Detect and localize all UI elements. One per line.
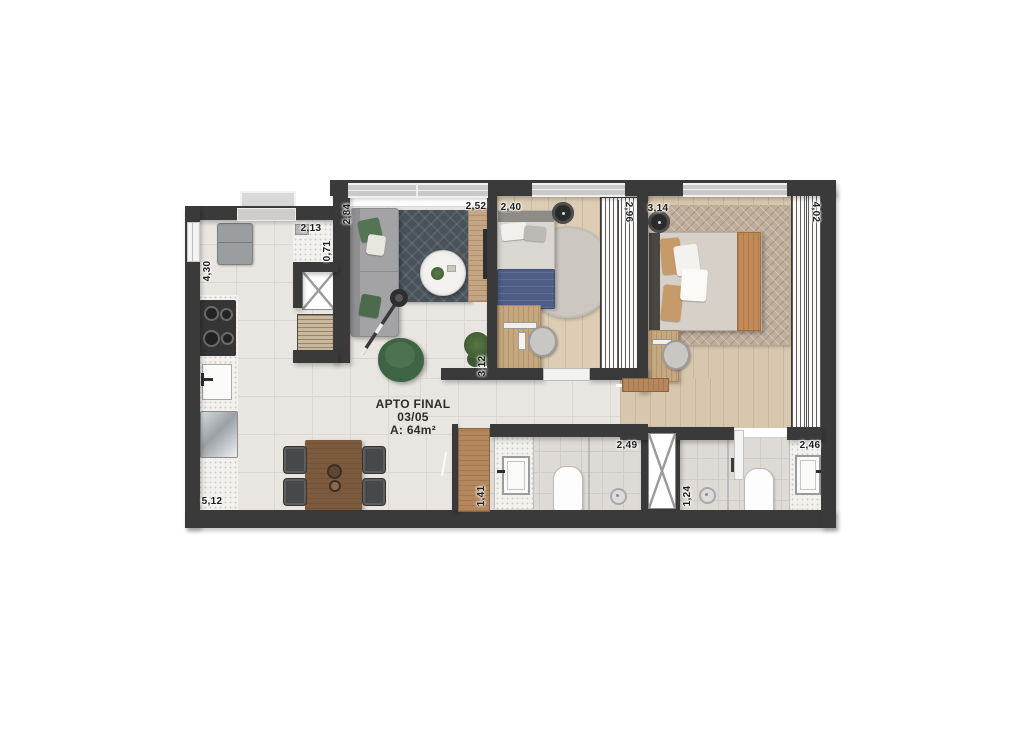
window-frame-line xyxy=(348,190,488,191)
shaft-x-icon xyxy=(649,434,675,508)
table-plant xyxy=(431,267,444,280)
dim-label-bedroom2-width: 3,14 xyxy=(643,203,673,215)
blue-blanket xyxy=(497,269,555,309)
bathroom2-door xyxy=(734,430,744,480)
louvered-cabinet xyxy=(297,314,336,353)
bathroom1-toilet xyxy=(553,466,583,511)
fridge xyxy=(217,223,253,265)
coffee-table xyxy=(420,250,466,296)
window-frame-line xyxy=(192,223,193,261)
apartment-title-line3: A: 64m² xyxy=(348,424,478,437)
bathroom1-shower-glass xyxy=(588,432,590,510)
wall-living-bedroom1 xyxy=(487,192,497,372)
burner xyxy=(203,330,220,347)
bedroom1-bed xyxy=(497,210,555,308)
dim-label-bathroom2-vanity: 2,46 xyxy=(795,440,825,452)
wardrobe-rail xyxy=(618,200,619,369)
dim-label-living-width: 2,52 xyxy=(461,201,491,213)
dim-label-hall-length: 3,12 xyxy=(477,351,489,381)
wall-counter-stub-left xyxy=(293,272,302,308)
burner xyxy=(220,308,233,321)
floor-plan: 2,13 0,71 4,30 5,12 2,84 2,52 2,40 2,96 … xyxy=(0,0,1024,739)
armchair-seat xyxy=(385,342,415,368)
desk-chair xyxy=(662,340,690,370)
table-decor xyxy=(327,464,342,479)
bathroom2-shower-glass xyxy=(727,437,729,512)
headboard xyxy=(649,233,660,330)
dim-label-kitchen-depth: 4,30 xyxy=(202,256,214,286)
bathroom2-sink xyxy=(795,455,821,495)
dim-label-kitchen-length: 5,12 xyxy=(197,496,227,508)
wardrobe-rail xyxy=(806,196,807,429)
dim-label-bathroom1-width: 1,41 xyxy=(476,481,488,511)
wall-bedroom1-bedroom2 xyxy=(637,192,648,392)
desk-chair xyxy=(528,326,557,357)
wall-counter-stub-bottom xyxy=(293,350,338,363)
dining-chair xyxy=(362,478,386,506)
bed-pillow xyxy=(523,225,546,242)
bedroom2-door xyxy=(622,378,669,392)
bedroom1-door xyxy=(543,368,590,381)
table-item xyxy=(447,265,456,272)
dining-table xyxy=(305,440,362,514)
shaft-x-icon xyxy=(303,272,334,309)
dim-label-bedroom1-closet: 2,96 xyxy=(622,197,634,227)
bathroom-duct-shaft xyxy=(648,433,676,509)
living-balcony-door xyxy=(348,183,488,198)
bathroom2-toilet xyxy=(744,468,774,514)
faucet-icon xyxy=(497,470,505,473)
dim-label-bathroom2-width: 1,24 xyxy=(682,481,694,511)
washing-machine xyxy=(200,411,238,458)
kitchen-duct-shaft xyxy=(302,271,335,310)
kitchen-sink xyxy=(202,364,232,400)
wall-bottom xyxy=(185,510,836,528)
burner xyxy=(204,306,219,321)
apartment-title: APTO FINAL 03/05 A: 64m² xyxy=(348,398,478,437)
monitor xyxy=(503,322,537,329)
bathroom1-sink xyxy=(502,456,530,495)
dim-label-counter-depth: 0,71 xyxy=(322,236,334,266)
wall-bedroom2-bottom-right xyxy=(787,427,822,440)
bedroom2-window xyxy=(683,183,787,197)
bedroom1-window xyxy=(532,183,625,197)
burner xyxy=(221,332,234,345)
bedroom2-wardrobe xyxy=(791,193,824,432)
bathroom2-shower-drain xyxy=(699,487,716,504)
faucet-icon xyxy=(201,373,204,386)
bedroom2-bed xyxy=(648,232,762,331)
armchair xyxy=(378,338,424,382)
dining-chair xyxy=(283,446,307,474)
wall-bedroom1-bottom xyxy=(441,368,543,380)
stove xyxy=(199,300,236,356)
bed-pillow xyxy=(680,268,708,302)
sofa-seam xyxy=(360,271,398,272)
dim-label-bedroom2-closet: 4,02 xyxy=(809,197,821,227)
dim-label-living-sofa-wall: 2,84 xyxy=(342,199,354,229)
bed-runner xyxy=(737,232,761,331)
table-decor xyxy=(329,480,341,492)
bathroom1-shower-drain xyxy=(610,488,627,505)
dining-chair xyxy=(362,446,386,474)
window-frame-line xyxy=(532,189,625,190)
bedroom1-lamp xyxy=(552,202,574,224)
dim-label-bedroom1-width: 2,40 xyxy=(496,202,526,214)
dining-chair xyxy=(283,478,307,506)
wall-bedroom2-bottom-left xyxy=(620,427,734,440)
window-frame-line xyxy=(416,185,418,196)
wall-right xyxy=(821,188,836,528)
dim-label-bathroom1-length: 2,49 xyxy=(612,440,642,452)
dim-label-counter-width: 2,13 xyxy=(296,223,326,235)
kitchen-window xyxy=(187,222,200,262)
white-throw xyxy=(366,234,387,256)
keyboard xyxy=(518,332,526,350)
fridge-divider xyxy=(218,242,252,243)
window-frame-line xyxy=(683,189,787,190)
kitchen-service-window xyxy=(237,208,296,221)
